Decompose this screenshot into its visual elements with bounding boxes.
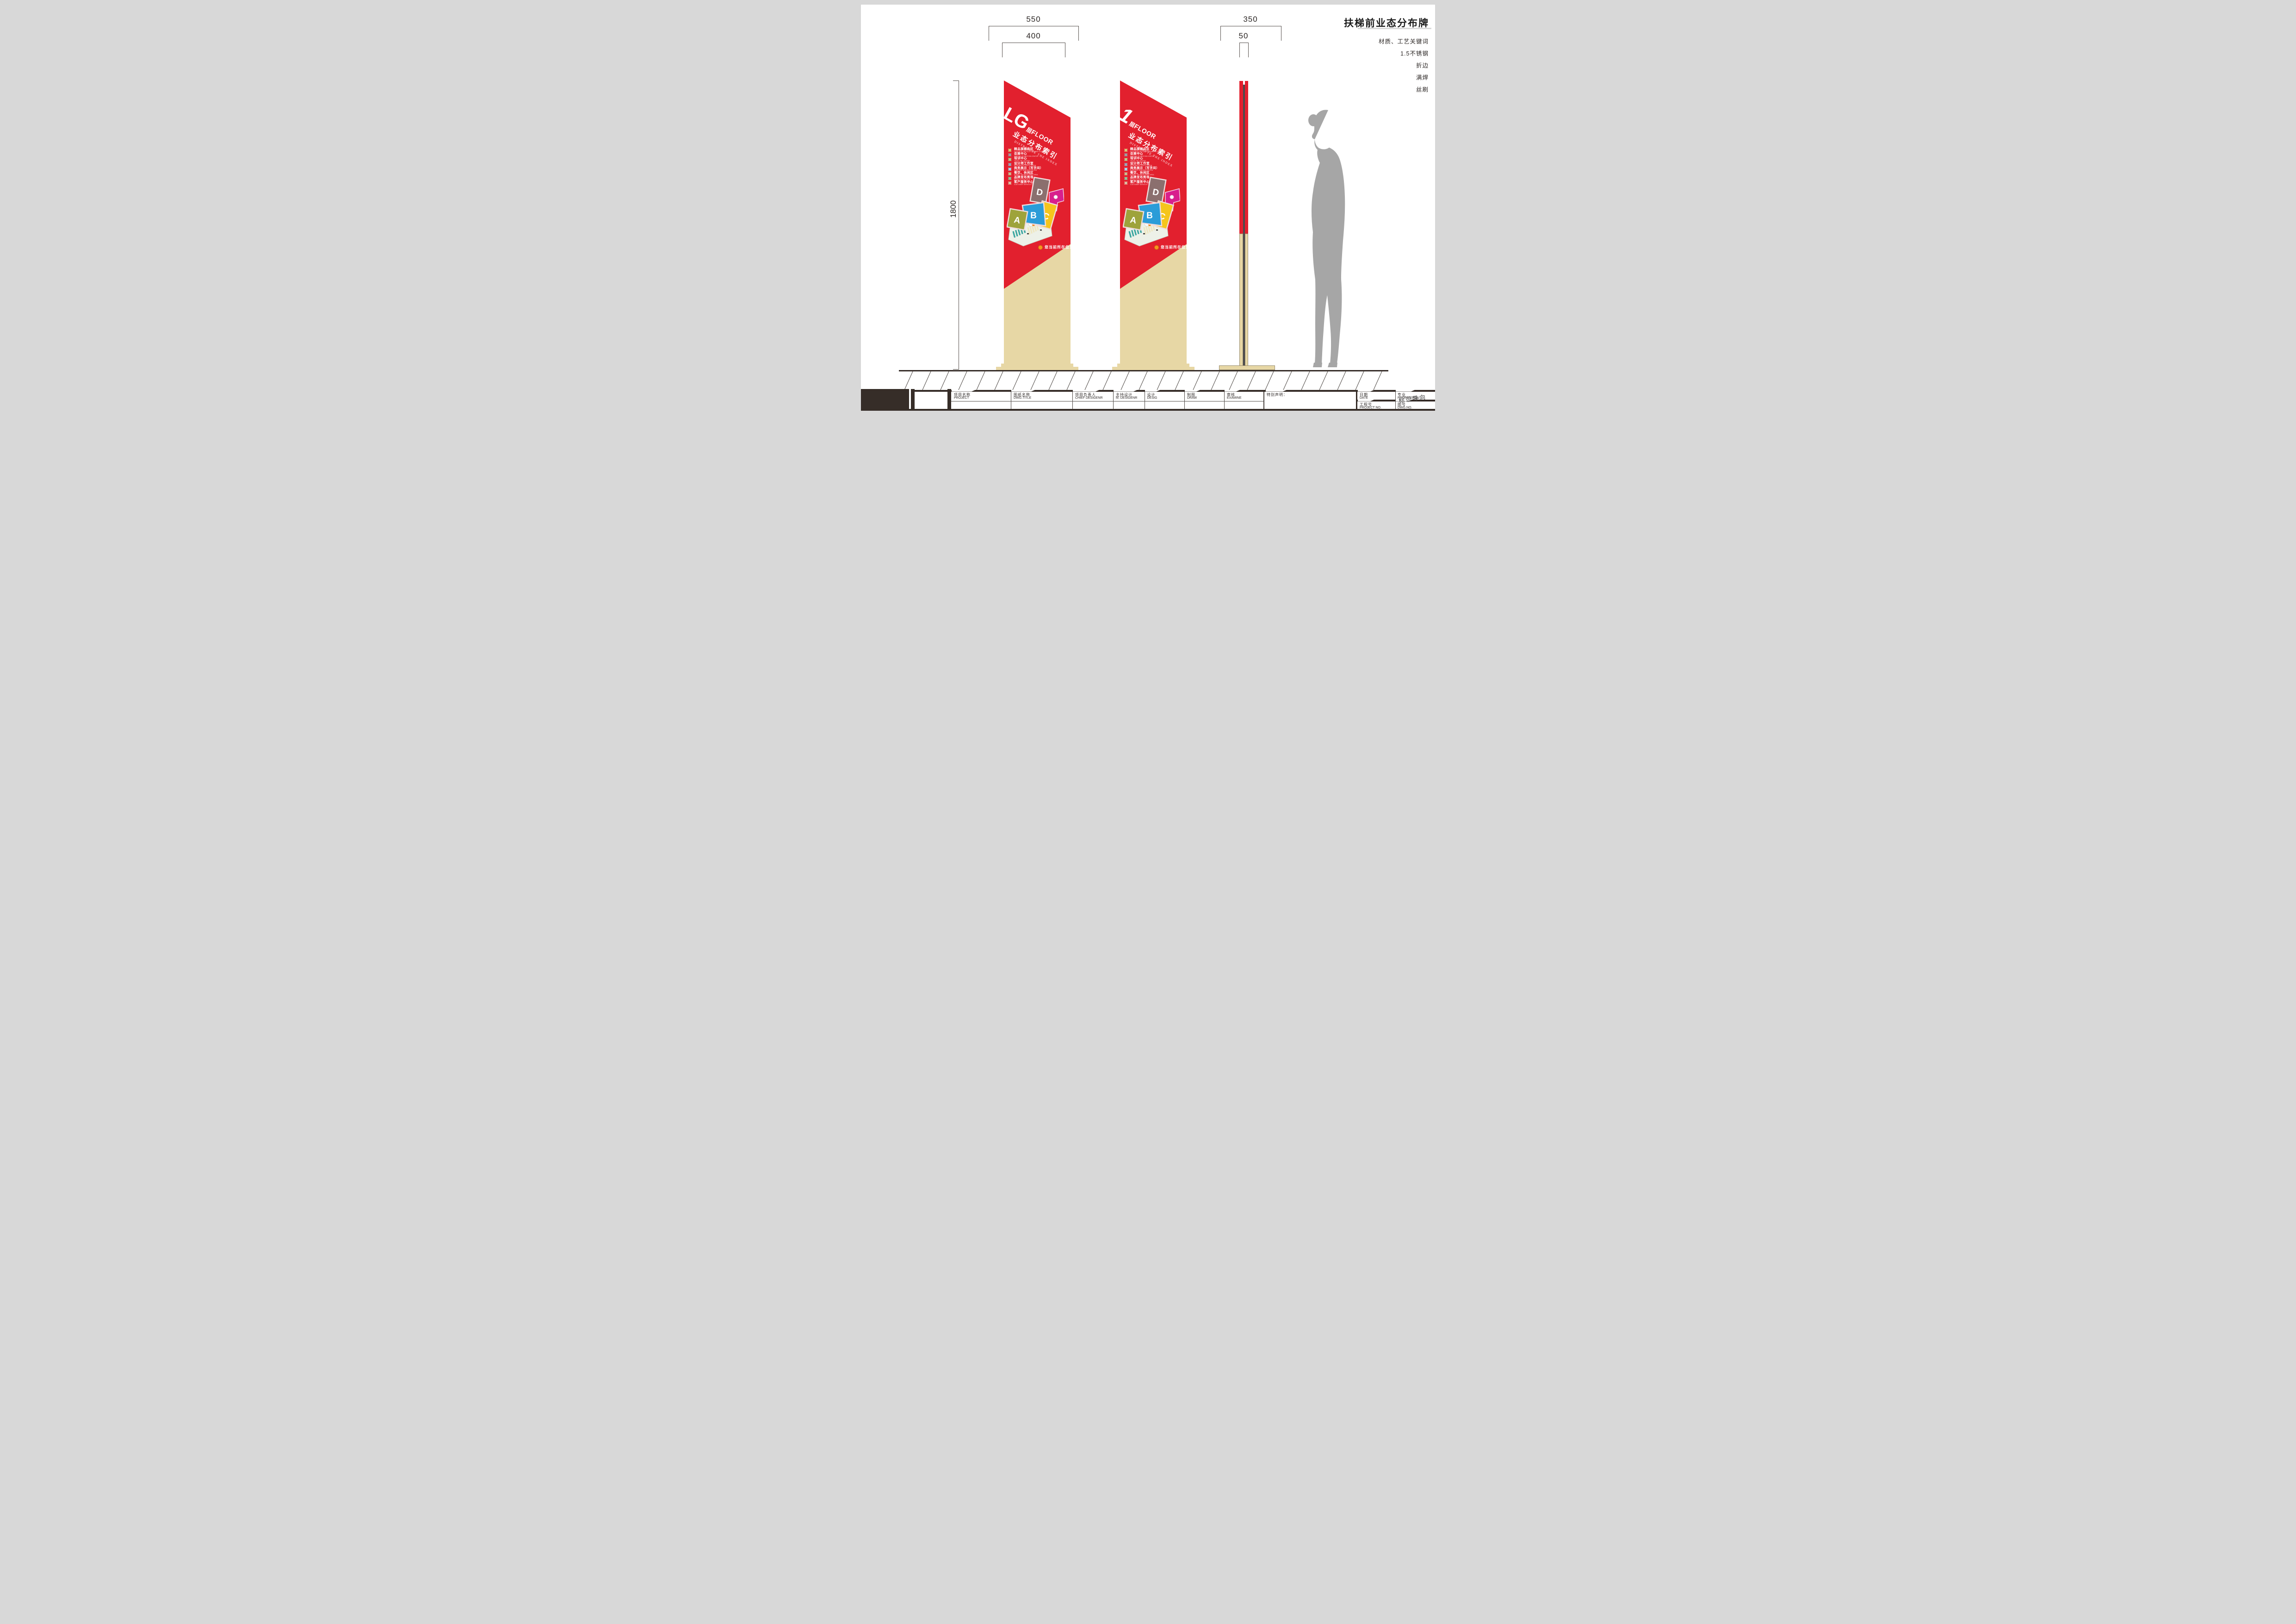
side-view-panel-left-lower — [1239, 234, 1243, 366]
dimension-350-label: 350 — [1232, 15, 1269, 24]
titleblock-strip — [947, 389, 952, 411]
dimension-400-label: 400 — [1015, 31, 1052, 41]
dimension-1800-tick-top — [953, 80, 959, 81]
field-draw-en: DRAW — [1187, 396, 1197, 400]
legend-marker-icon — [1008, 172, 1012, 176]
titleblock-strip — [911, 389, 915, 411]
field-projectno-en: PROJECT NO. — [1360, 406, 1381, 409]
legend-marker-icon — [1124, 167, 1128, 171]
field-chief-en: CHIEF DESIGENR — [1075, 396, 1103, 400]
field-maindesign-en: M. DESIGENR — [1116, 396, 1137, 400]
dimension-400-bracket — [1002, 43, 1065, 57]
totem-sign-front-lg: LG 层FLOOR 业态分布索引 DISTRIBUTE THE INDEX 精品… — [1004, 80, 1071, 364]
material-keywords-title: 材质、工艺关键词 — [1379, 37, 1429, 45]
material-item: 1.5不锈钢 — [1400, 49, 1429, 57]
dimension-1800-line — [959, 80, 959, 370]
current-location-note: 您当前所在位置 — [1154, 245, 1190, 250]
legend-marker-icon — [1008, 148, 1012, 152]
border-notch — [952, 390, 976, 392]
legend-marker-icon — [1008, 163, 1012, 167]
field-divider — [1184, 392, 1185, 409]
border-notch — [1011, 390, 1035, 392]
sign1-base-upper — [1001, 364, 1073, 367]
field-divider — [1072, 392, 1073, 409]
title-underline — [1358, 28, 1431, 29]
legend-marker-icon — [1124, 148, 1128, 152]
dimension-50-bracket — [1239, 43, 1249, 57]
field-divider — [1113, 392, 1114, 409]
current-location-label: 您当前所在位置 — [1161, 245, 1190, 250]
field-special-note: 特别声明： — [1267, 392, 1287, 397]
side-view-panel-left — [1239, 81, 1243, 234]
legend-marker-icon — [1008, 158, 1012, 161]
dimension-50-label: 50 — [1234, 31, 1253, 41]
floor-map — [1123, 177, 1180, 247]
field-examine-en: EXAMINE — [1227, 396, 1242, 400]
legend-marker-icon — [1124, 163, 1128, 167]
floor-map — [1007, 177, 1064, 247]
legend-marker-icon — [1008, 167, 1012, 171]
legend-marker-icon — [1124, 158, 1128, 161]
field-divider — [1011, 392, 1011, 409]
field-divider — [1395, 392, 1396, 409]
field-divider — [1224, 392, 1225, 409]
current-location-note: 您当前所在位置 — [1038, 245, 1074, 250]
titleblock-corner-block — [861, 389, 909, 411]
current-location-label: 您当前所在位置 — [1045, 245, 1074, 250]
field-project-en: PROJECT — [954, 396, 969, 400]
field-divider — [1263, 392, 1264, 409]
material-item: 丝刷 — [1416, 85, 1429, 93]
legend-marker-icon — [1124, 172, 1128, 176]
dimension-1800-label: 1800 — [949, 195, 958, 223]
legend-marker-icon — [1124, 153, 1128, 157]
field-date-en: DATE — [1360, 396, 1368, 400]
field-divider — [1145, 392, 1145, 409]
side-view-panel-right — [1245, 81, 1249, 234]
material-item: 满焊 — [1416, 73, 1429, 81]
field-underline — [951, 401, 1263, 401]
titleblock-bottom-border — [861, 409, 1435, 411]
sign2-base-upper — [1117, 364, 1189, 367]
current-location-icon — [1038, 245, 1043, 250]
border-notch — [1073, 390, 1100, 392]
material-item: 折边 — [1416, 61, 1429, 69]
totem-sign-front-1f: 1 层FLOOR 业态分布索引 DISTRIBUTE THE INDEX 精品旗… — [1120, 80, 1187, 364]
scale-person-silhouette — [1300, 107, 1354, 370]
ground-hatch — [899, 371, 1388, 390]
border-notch — [1114, 390, 1138, 392]
drawing-sheet: 扶梯前业态分布牌 材质、工艺关键词 1.5不锈钢 折边 满焊 丝刷 550 40… — [861, 5, 1435, 411]
side-view-panel-right-lower — [1245, 234, 1249, 366]
dimension-550-label: 550 — [1015, 15, 1052, 24]
field-dwgno-en: DWG.NO. — [1398, 406, 1412, 409]
field-dwgtitle-en: DWG.TITLE — [1014, 396, 1031, 400]
field-design-en: DESIG — [1147, 396, 1157, 400]
side-view-base-slab — [1219, 365, 1275, 370]
current-location-icon — [1154, 245, 1159, 250]
legend-marker-icon — [1008, 153, 1012, 157]
